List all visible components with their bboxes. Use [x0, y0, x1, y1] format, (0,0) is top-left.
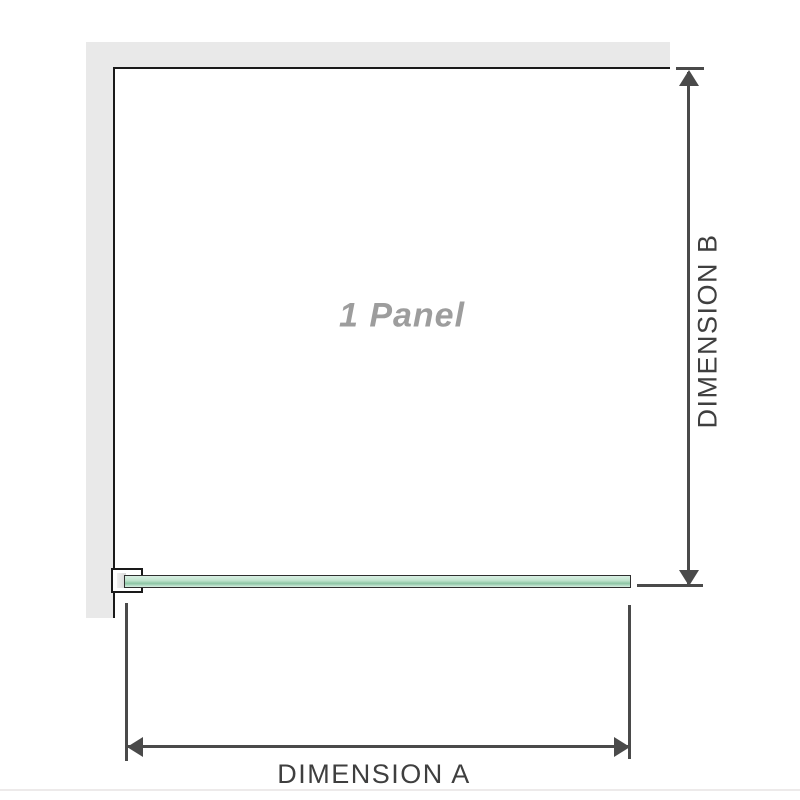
arrow-right-icon [614, 737, 630, 757]
wall-left [86, 42, 113, 618]
dimension-b-label: DIMENSION B [693, 233, 724, 428]
panel-outline-top [113, 67, 670, 69]
shower-screen-dimension-diagram: 1 Panel DIMENSION B DIMENSION A [0, 0, 800, 800]
page-divider [0, 789, 800, 791]
dimension-a-line [127, 745, 630, 748]
arrow-up-icon [679, 70, 699, 86]
glass-panel [124, 575, 631, 588]
dimension-b-line [687, 72, 690, 584]
arrow-left-icon [127, 737, 143, 757]
wall-top [86, 42, 670, 67]
panel-count-label: 1 Panel [339, 297, 465, 336]
dimension-a-extension-right [628, 605, 631, 759]
panel-outline-left [113, 67, 115, 618]
arrow-down-icon [679, 570, 699, 586]
dimension-a-label: DIMENSION A [277, 759, 471, 790]
